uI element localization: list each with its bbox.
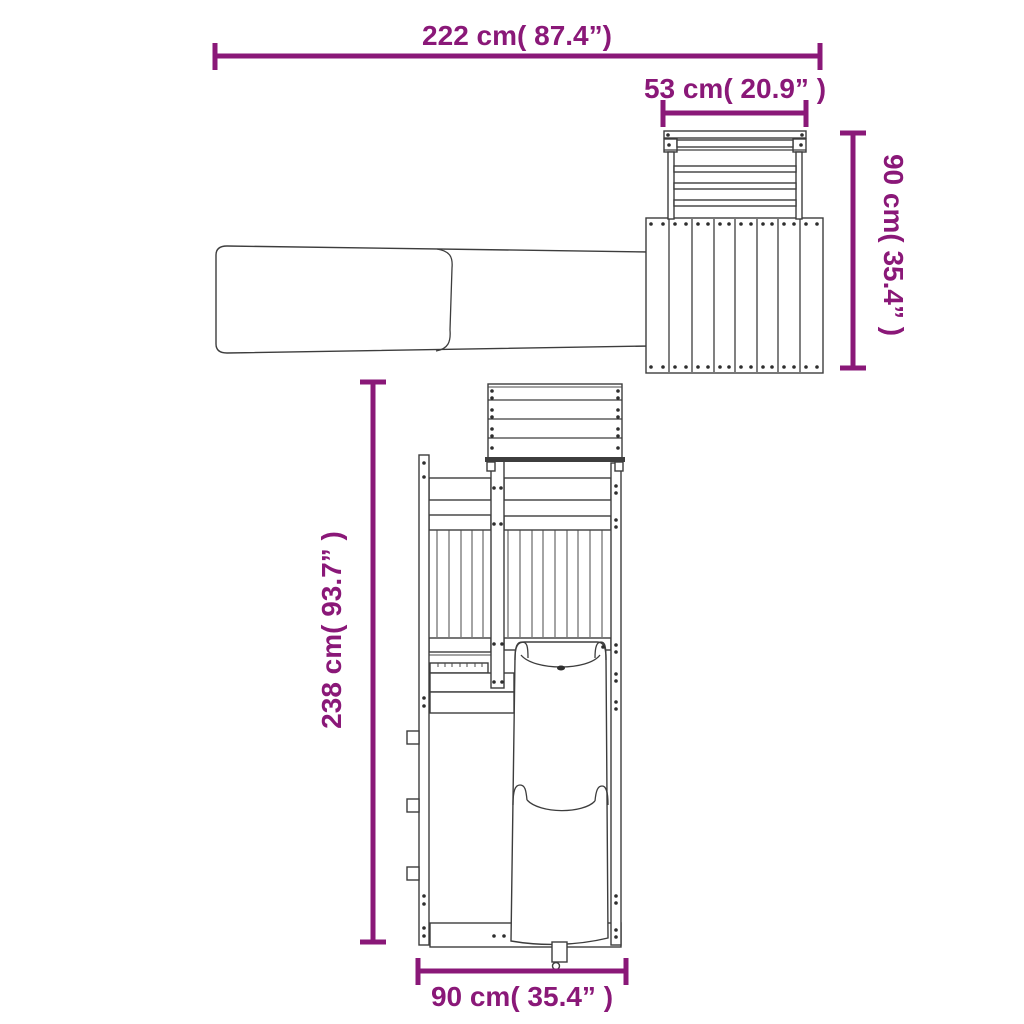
- dim-overall-width-label: 222 cm( 87.4”): [422, 20, 612, 51]
- balusters-left: [437, 530, 483, 637]
- dim-roof-side-height-label: 90 cm( 35.4” ): [878, 154, 909, 336]
- roof-frame-top-view: [664, 131, 806, 219]
- slide-front-view: [511, 642, 608, 970]
- dimension-roof-side-height: [840, 131, 866, 370]
- roof-slat: [674, 200, 796, 206]
- product-dimension-diagram: 222 cm( 87.4”) 53 cm( 20.9” ) 90 cm( 35.…: [0, 0, 1024, 1024]
- roof-post-left: [668, 152, 674, 219]
- roof-eave-bar: [485, 457, 625, 462]
- roof-slat: [674, 166, 796, 172]
- dim-roof-width-label: 53 cm( 20.9” ): [644, 73, 826, 104]
- roof-bracket: [615, 462, 623, 471]
- diagram-canvas: 222 cm( 87.4”) 53 cm( 20.9” ) 90 cm( 35.…: [0, 0, 1024, 1024]
- balusters-right: [508, 530, 602, 637]
- left-post-tabs: [407, 731, 419, 880]
- dim-base-width-label: 90 cm( 35.4” ): [431, 981, 613, 1012]
- right-post: [611, 463, 621, 945]
- roof-front-view: [485, 384, 625, 471]
- roof-slat: [674, 183, 796, 189]
- top-view: [216, 131, 823, 373]
- railing: [429, 478, 611, 655]
- roof-bracket: [487, 462, 495, 471]
- center-post: [491, 461, 504, 688]
- left-post: [419, 455, 429, 945]
- slide-top-view: [216, 246, 650, 353]
- dimension-overall-height: [360, 380, 386, 944]
- slide-foot: [552, 942, 567, 970]
- roof-post-right: [796, 152, 802, 219]
- dim-overall-height-label: 238 cm( 93.7” ): [316, 531, 347, 729]
- dimension-roof-width: [661, 100, 808, 127]
- platform-top-view: [646, 218, 823, 373]
- plank-end-ticks: [438, 663, 482, 667]
